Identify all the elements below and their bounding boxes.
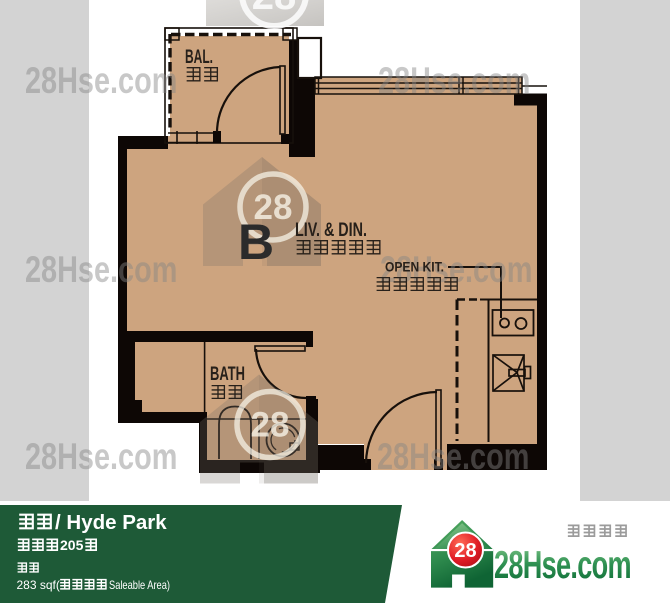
svg-text:LIV. & DIN.: LIV. & DIN. — [295, 220, 367, 241]
svg-text:/ Hyde Park: / Hyde Park — [55, 511, 167, 534]
svg-text:283 sqf(: 283 sqf( — [17, 578, 60, 592]
svg-text:B: B — [238, 214, 274, 270]
svg-text:OPEN KIT.: OPEN KIT. — [385, 260, 444, 275]
svg-text:28Hse.com: 28Hse.com — [25, 437, 177, 478]
svg-text:28: 28 — [252, 0, 297, 18]
svg-text:28Hse.com: 28Hse.com — [25, 61, 177, 102]
svg-text:28: 28 — [454, 540, 476, 562]
svg-text:BATH: BATH — [210, 364, 245, 385]
svg-text:28Hse.com: 28Hse.com — [377, 437, 529, 478]
svg-text:BAL.: BAL. — [185, 46, 213, 68]
svg-text:Saleable Area): Saleable Area) — [109, 578, 170, 592]
svg-text:205: 205 — [60, 537, 84, 553]
svg-text:28Hse.com: 28Hse.com — [25, 250, 177, 291]
svg-text:28Hse.com: 28Hse.com — [378, 61, 530, 102]
svg-text:28Hse.com: 28Hse.com — [494, 544, 631, 587]
